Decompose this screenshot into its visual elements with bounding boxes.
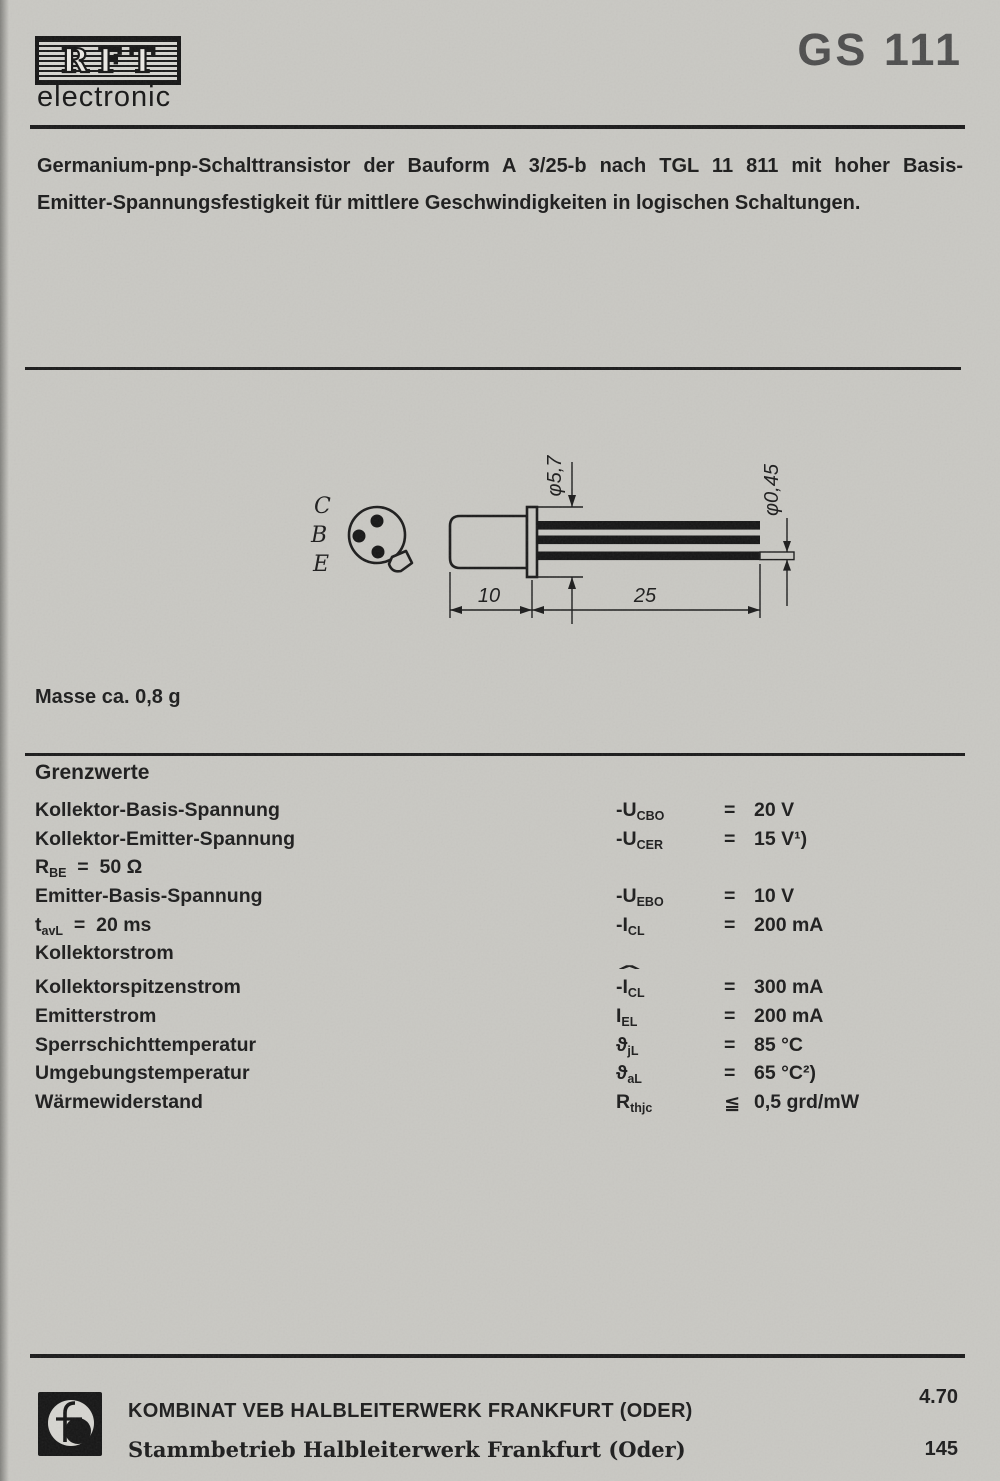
flange	[527, 507, 537, 577]
rft-logo: RFT	[35, 36, 181, 85]
limit-relation: =	[724, 976, 735, 999]
datasheet-page: RFT electronic GS 111 Germanium-pnp-Scha…	[0, 0, 1000, 1481]
limit-relation: =	[724, 799, 735, 822]
limit-value: 85 °C	[754, 1034, 803, 1057]
limit-value: 300 mA	[754, 976, 823, 999]
footer-page-number: 145	[925, 1438, 958, 1461]
limit-label: Kollektorspitzenstrom	[35, 976, 241, 1000]
rft-logo-text: RFT	[52, 44, 163, 77]
hfo-logo	[38, 1392, 102, 1456]
limit-row: Kollektor-Basis-Spannung -UCBO = 20 V	[35, 799, 945, 828]
lead-bottom	[537, 552, 760, 561]
limit-value: 20 V	[754, 799, 794, 822]
limit-symbol: Rthjc	[616, 1091, 652, 1115]
limit-value: 15 V¹)	[754, 828, 807, 851]
limit-value: 200 mA	[754, 1005, 823, 1028]
limit-row: Emitterstrom IEL = 200 mA	[35, 1005, 945, 1034]
dim-label-body-len: 10	[478, 585, 500, 607]
limit-relation: =	[724, 1005, 735, 1028]
pin-label-c: C	[314, 494, 331, 519]
limit-row: tavL = 20 ms -ICL = 200 mA	[35, 914, 945, 943]
limits-table: Kollektor-Basis-Spannung -UCBO = 20 V Ko…	[35, 799, 945, 1120]
pin-dot-b	[353, 530, 366, 543]
limit-row: Kollektor-Emitter-Spannung -UCER = 15 V¹…	[35, 828, 945, 857]
lead-middle	[537, 536, 760, 545]
mass-note: Masse ca. 0,8 g	[35, 686, 181, 709]
lead-tip-outline	[760, 552, 794, 560]
limit-symbol: ϑaL	[616, 1062, 642, 1086]
limit-value: 200 mA	[754, 914, 823, 937]
paper-texture	[0, 0, 1000, 1481]
limit-label: tavL = 20 ms	[35, 914, 151, 938]
limits-rule	[25, 753, 965, 756]
pin-label-b: B	[310, 523, 327, 548]
limit-relation: =	[724, 914, 735, 937]
dim-label-lead-len: 25	[633, 585, 657, 607]
limit-label: Kollektor-Basis-Spannung	[35, 799, 280, 823]
limits-title: Grenzwerte	[35, 761, 149, 785]
footer-company-line1: KOMBINAT VEB HALBLEITERWERK FRANKFURT (O…	[128, 1400, 693, 1423]
limit-value: 65 °C²)	[754, 1062, 816, 1085]
index-tab	[389, 551, 412, 571]
limit-label: Emitter-Basis-Spannung	[35, 885, 263, 909]
limit-symbol: -UCER	[616, 828, 663, 852]
limit-row: Kollektorstrom	[35, 942, 945, 971]
description-paragraph: Germanium-pnp-Schalttransistor der Baufo…	[37, 148, 963, 222]
part-number: GS 111	[797, 24, 963, 76]
limit-symbol: ϑjL	[616, 1034, 638, 1058]
pin-label-e: E	[312, 552, 329, 577]
limit-label: RBE = 50 Ω	[35, 856, 142, 880]
limit-relation: ≦	[724, 1091, 740, 1115]
brand-subtitle: electronic	[37, 81, 171, 114]
limit-symbol: -UEBO	[616, 885, 664, 909]
limit-label: Kollektorstrom	[35, 942, 174, 966]
footer-rule	[30, 1354, 965, 1358]
limit-value: 0,5 grd/mW	[754, 1091, 859, 1114]
limit-label: Umgebungstemperatur	[35, 1062, 250, 1086]
limit-row: Kollektorspitzenstrom ˆ-ICL = 300 mA	[35, 976, 945, 1005]
lead-top	[537, 521, 760, 530]
limit-symbol: -UCBO	[616, 799, 664, 823]
footer-date-code: 4.70	[919, 1386, 958, 1409]
limit-symbol: IEL	[616, 1005, 637, 1029]
header-rule	[30, 125, 965, 129]
dim-label-lead-dia: φ0,45	[761, 463, 783, 516]
limit-relation: =	[724, 1034, 735, 1057]
limit-row: Umgebungstemperatur ϑaL = 65 °C²)	[35, 1062, 945, 1091]
dim-label-body-dia: φ5,7	[544, 455, 566, 497]
package-drawing: C B E φ5,7	[288, 418, 822, 650]
limit-symbol: -ICL	[616, 914, 645, 938]
limit-label: Emitterstrom	[35, 1005, 156, 1029]
dim-lead-dia	[783, 518, 791, 606]
limit-symbol: ˆ-ICL	[616, 976, 645, 1000]
side-view	[450, 507, 794, 577]
limit-row: Sperrschichttemperatur ϑjL = 85 °C	[35, 1034, 945, 1063]
pin-dot-c	[371, 515, 384, 528]
limit-label: Sperrschichttemperatur	[35, 1034, 256, 1058]
limit-row: Emitter-Basis-Spannung -UEBO = 10 V	[35, 885, 945, 914]
pinout-view	[349, 507, 412, 571]
description-line-2: Emitter-Spannungsfestigkeit für mittlere…	[37, 185, 963, 222]
limit-relation: =	[724, 828, 735, 851]
description-line-1: Germanium-pnp-Schalttransistor der Baufo…	[37, 148, 963, 185]
limit-label: Kollektor-Emitter-Spannung	[35, 828, 295, 852]
limit-relation: =	[724, 1062, 735, 1085]
section-rule-top	[25, 367, 961, 370]
limit-row: Wärmewiderstand Rthjc ≦ 0,5 grd/mW	[35, 1091, 945, 1120]
limit-label: Wärmewiderstand	[35, 1091, 203, 1115]
pin-dot-e	[372, 546, 385, 559]
limit-value: 10 V	[754, 885, 794, 908]
limit-row: RBE = 50 Ω	[35, 856, 945, 885]
limit-relation: =	[724, 885, 735, 908]
body-outline	[450, 516, 527, 568]
scan-edge-shadow	[0, 0, 9, 1481]
footer-company-line2: Stammbetrieb Halbleiterwerk Frankfurt (O…	[128, 1437, 686, 1462]
